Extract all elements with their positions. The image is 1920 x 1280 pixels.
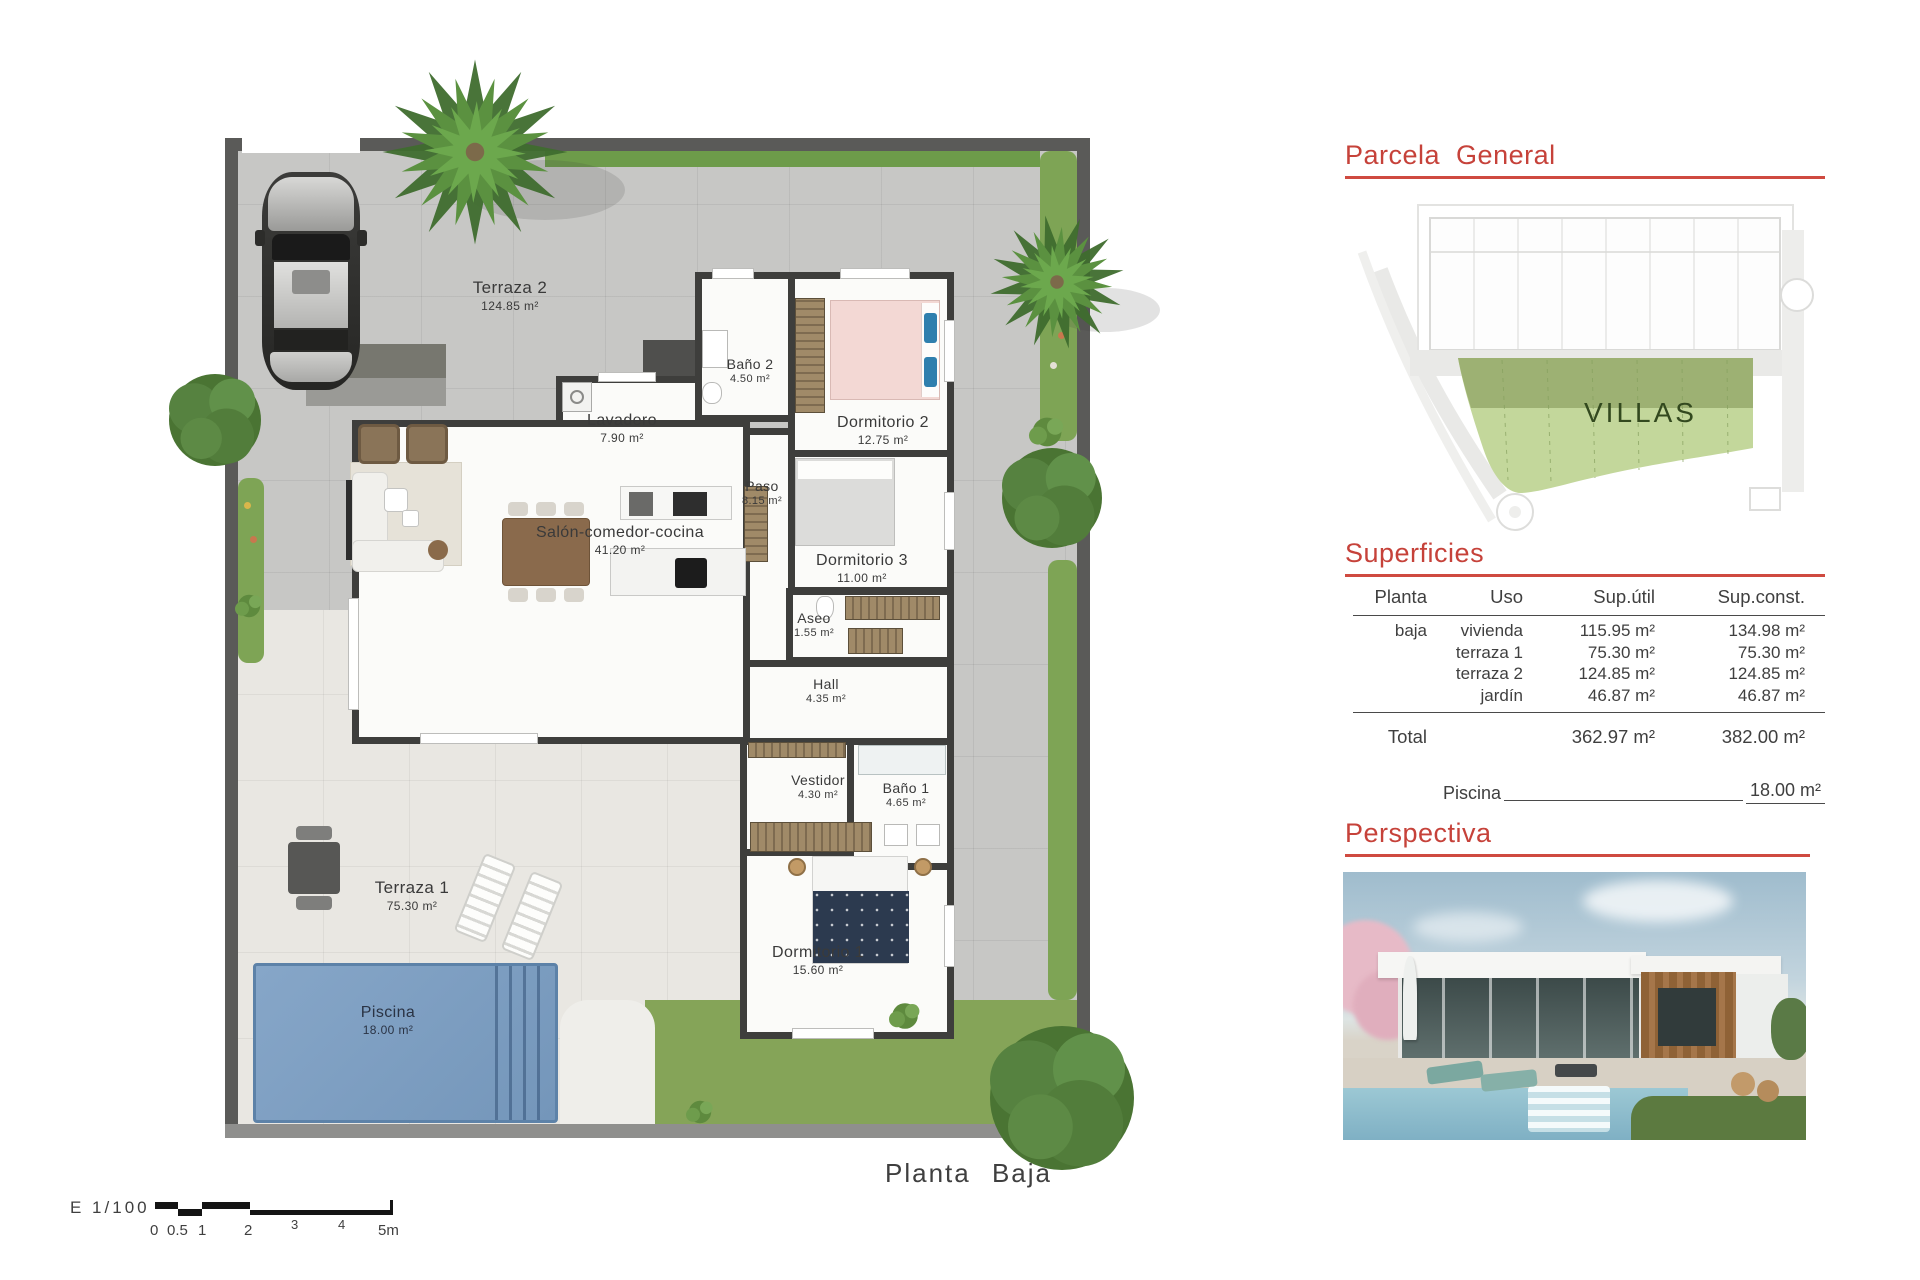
window (840, 268, 910, 279)
villa-roof (1378, 952, 1646, 978)
villa-wood-window (1658, 988, 1716, 1046)
pool-steps (484, 966, 542, 1120)
label-aseo: Aseo1.55 m² (783, 610, 845, 639)
garden-strip-left (238, 478, 264, 663)
label-bano1: Baño 14.65 m² (856, 780, 956, 809)
window (598, 372, 656, 382)
nightstand-lamp (788, 858, 806, 876)
table-row: bajavivienda 115.95 m²134.98 m² (1345, 620, 1825, 642)
scale-tick: 1 (198, 1222, 206, 1239)
flower-dot (250, 536, 257, 543)
label-bano2: Baño 24.50 m² (700, 356, 800, 385)
sink-bano1 (884, 824, 908, 846)
scale-tick: 0 (150, 1222, 158, 1239)
garden-strip-right-lower (1048, 560, 1077, 1000)
scale-tick: 0.5 (167, 1222, 188, 1239)
scale-label: E 1/100 (70, 1198, 150, 1218)
render-hedge (1631, 1096, 1806, 1140)
render-table (1555, 1064, 1597, 1077)
scale-tick: 2 (244, 1222, 252, 1239)
table-row: terraza 2 124.85 m²124.85 m² (1345, 663, 1825, 685)
garden-path (560, 1000, 655, 1124)
label-hall: Hall4.35 m² (786, 676, 866, 705)
villas-zone-label: VILLAS (1584, 397, 1697, 428)
window (944, 320, 955, 382)
superficies-table: Planta Uso Sup.útil Sup.const. bajavivie… (1345, 582, 1825, 804)
title-rule (1345, 854, 1810, 857)
piscina-label: Piscina (1443, 783, 1501, 804)
piscina-value: 18.00 m² (1746, 780, 1825, 804)
garden-strip-right-upper (1040, 151, 1077, 441)
bed-dormitorio2 (830, 300, 940, 400)
dining-chair (536, 502, 556, 516)
label-terraza2: Terraza 2124.85 m² (420, 278, 600, 313)
coffee-table (384, 488, 408, 512)
piscina-row: Piscina 18.00 m² (1345, 780, 1825, 804)
car (262, 172, 360, 390)
window (792, 1028, 874, 1039)
wicker-chair (1757, 1080, 1779, 1102)
plot-wall-right (1077, 138, 1090, 1138)
patio-chair (296, 896, 332, 910)
dining-chair (508, 588, 528, 602)
table-row: jardín 46.87 m²46.87 m² (1345, 685, 1825, 707)
window (944, 905, 955, 967)
bed-dormitorio3 (795, 458, 895, 546)
window (944, 492, 955, 550)
cloud (1413, 912, 1523, 942)
closet-strip (848, 628, 903, 654)
table-header-row: Planta Uso Sup.útil Sup.const. (1345, 582, 1825, 612)
flower-dot (1052, 300, 1060, 308)
label-lavadero: Lavadero7.90 m² (562, 412, 682, 445)
closet-strip (845, 596, 940, 620)
washer-lavadero (562, 382, 592, 412)
label-salon: Salón-comedor-cocina41.20 m² (520, 524, 720, 557)
plan-caption: Planta Baja (885, 1158, 1052, 1189)
coffee-table (402, 510, 419, 527)
flower-dot (1058, 332, 1065, 339)
pool-steps (1528, 1086, 1610, 1132)
shower-bano1 (858, 745, 946, 775)
wicker-chair (1731, 1072, 1755, 1096)
dotted-leader (1504, 800, 1743, 801)
perspective-render (1343, 872, 1806, 1140)
parasol (1403, 956, 1417, 1040)
table-total-row: Total 362.97 m²382.00 m² (1345, 717, 1825, 750)
label-dormitorio3: Dormitorio 311.00 m² (792, 552, 932, 585)
superficies-title: Superficies (1345, 538, 1484, 569)
dining-chair (564, 502, 584, 516)
window (712, 268, 754, 279)
label-piscina: Piscina18.00 m² (328, 1004, 448, 1037)
label-paso: Paso8.15 m² (722, 478, 802, 507)
cloud (1583, 880, 1733, 922)
plot-wall-bottom (225, 1124, 1090, 1138)
perspectiva-title: Perspectiva (1345, 818, 1492, 849)
label-dormitorio2: Dormitorio 212.75 m² (813, 414, 953, 447)
sliding-door (348, 598, 359, 710)
patio-chair (296, 826, 332, 840)
dining-chair (564, 588, 584, 602)
scale-bar: E 1/100 0 0.5 1 2 3 4 5m (70, 1196, 430, 1246)
title-rule (1345, 176, 1825, 179)
basket (428, 540, 448, 560)
flower-dot (1050, 362, 1057, 369)
sink-bano1 (916, 824, 940, 846)
table-rule (1353, 615, 1825, 616)
dining-chair (536, 588, 556, 602)
wardrobe-vestidor-bottom (750, 822, 872, 852)
parcela-title: Parcela General (1345, 140, 1556, 171)
dining-chair (508, 502, 528, 516)
floor-plan-sheet: Terraza 2124.85 m² Baño 24.50 m² Dormito… (0, 0, 1920, 1280)
scale-tick: 4 (338, 1217, 345, 1232)
armchair (358, 424, 400, 464)
scale-tick: 3 (291, 1217, 298, 1232)
label-dormitorio1: Dormitorio 115.60 m² (738, 944, 898, 977)
plot-entrance-gap (242, 136, 360, 153)
toilet-bano2 (702, 382, 722, 404)
parcela-diagram: VILLAS (1350, 190, 1820, 535)
scale-tick: 5m (378, 1222, 399, 1239)
table-rule (1353, 712, 1825, 713)
sliding-door (420, 733, 538, 744)
wardrobe-vestidor-top (748, 742, 846, 758)
table-row: terraza 1 75.30 m²75.30 m² (1345, 642, 1825, 664)
label-terraza1: Terraza 175.30 m² (332, 878, 492, 913)
title-rule (1345, 574, 1825, 577)
kitchen-island (620, 486, 732, 520)
small-tree (1771, 998, 1806, 1060)
tv-unit (346, 480, 352, 560)
plot-wall-left (225, 138, 238, 1138)
nightstand-lamp (914, 858, 932, 876)
hedge-top (545, 151, 1040, 167)
armchair (406, 424, 448, 464)
flower-dot (244, 502, 251, 509)
